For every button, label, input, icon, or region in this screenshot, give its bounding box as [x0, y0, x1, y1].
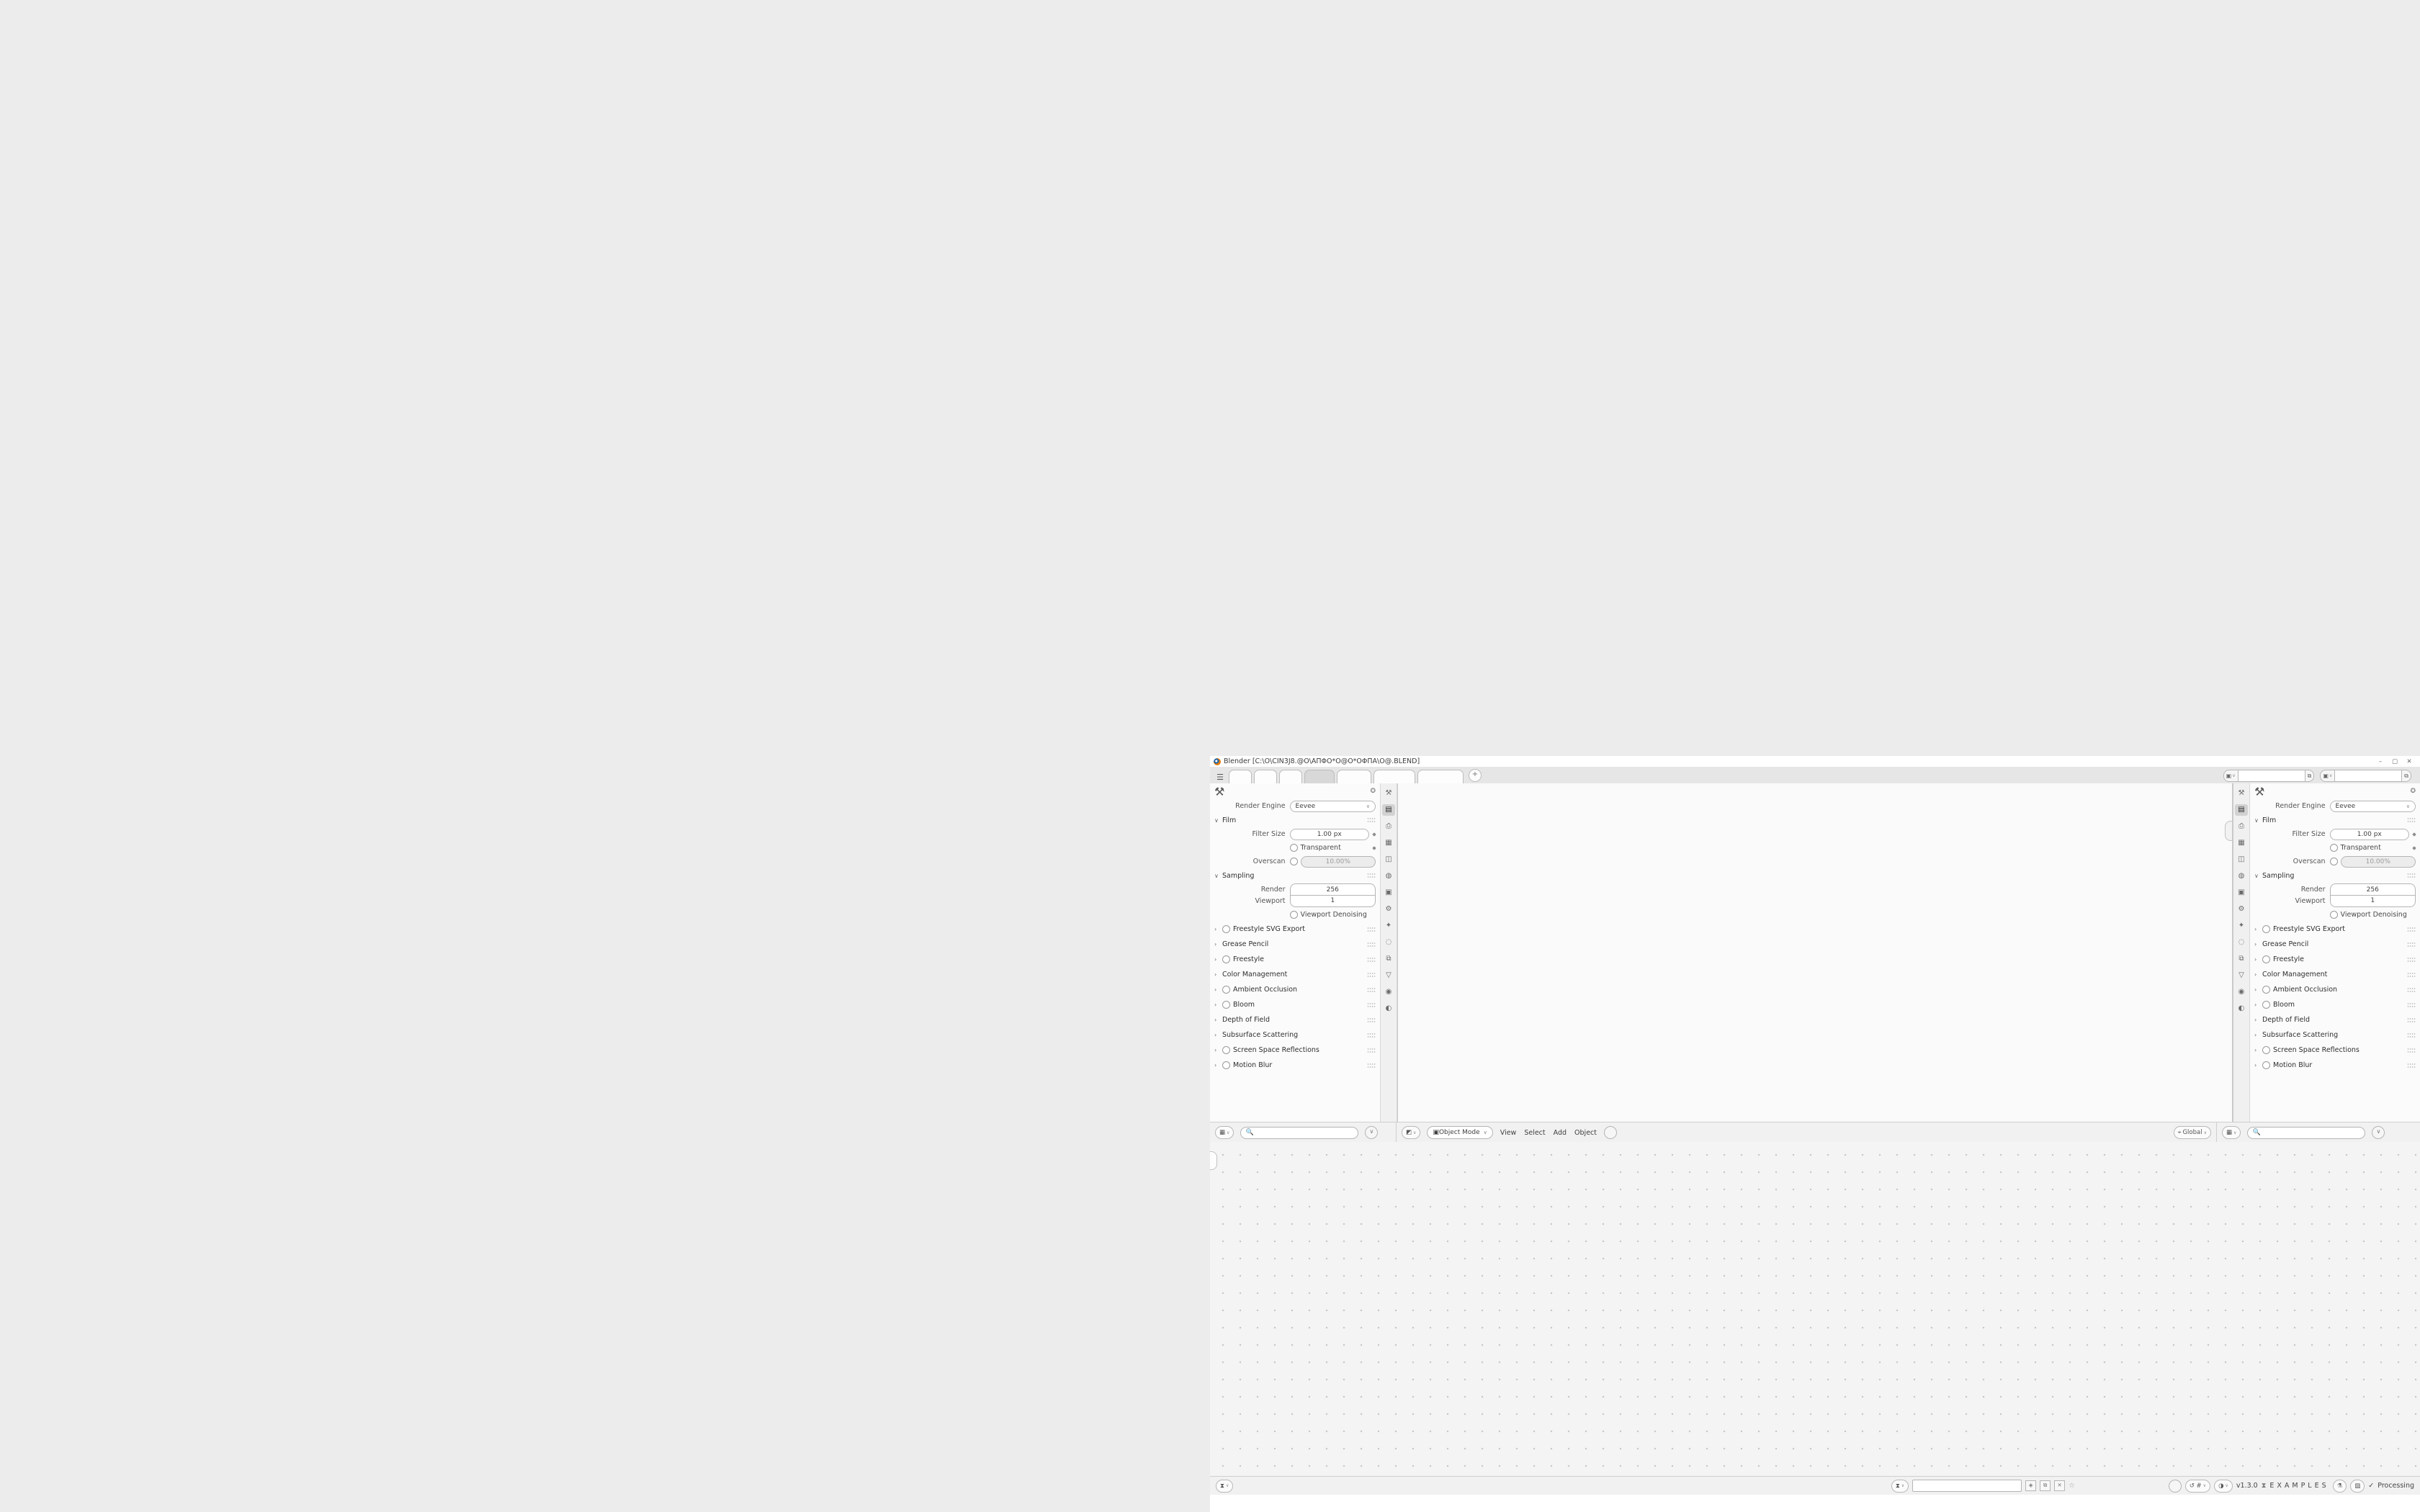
section-label: Grease Pencil	[1222, 940, 1268, 948]
drag-grip-icon	[2407, 1032, 2416, 1038]
section-subsurface-scattering[interactable]: ›Subsurface Scattering	[1210, 1027, 1380, 1043]
overscan-field[interactable]: 10.00%	[2341, 856, 2416, 868]
orientation-label: Global	[2182, 1129, 2202, 1136]
transparent-row: Transparent	[2250, 841, 2420, 855]
viewport-menu-add[interactable]: Add	[1553, 1129, 1567, 1137]
object-icon[interactable]: ▣	[1382, 887, 1395, 899]
drag-grip-icon	[2407, 942, 2416, 948]
search-input[interactable]: 🔍	[2247, 1127, 2365, 1139]
chevron-collapsed-icon: ›	[1214, 956, 1222, 963]
blank-toggle[interactable]	[1604, 1126, 1617, 1139]
section-grease-pencil[interactable]: ›Grease Pencil	[2250, 937, 2420, 952]
scene-selector: ▣∨⧉	[2223, 770, 2315, 781]
modifier-icon[interactable]: ⚙	[2235, 904, 2248, 915]
transparent-checkbox[interactable]	[1290, 844, 1298, 852]
tool-icon[interactable]: ⚒	[1382, 788, 1395, 799]
drag-grip-icon	[1367, 1017, 1376, 1023]
data-icon[interactable]: ▽	[2235, 970, 2248, 981]
editor-type-button[interactable]: ◩ ∨	[1402, 1126, 1420, 1139]
chevron-collapsed-icon: ›	[2254, 1047, 2262, 1053]
chevron-collapsed-icon: ›	[1214, 1017, 1222, 1023]
section-label: Screen Space Reflections	[1233, 1046, 1319, 1054]
section-bloom[interactable]: ›Bloom	[1210, 997, 1380, 1012]
drag-grip-icon	[1367, 927, 1376, 932]
scene-selector-field[interactable]	[2238, 770, 2305, 782]
viewport-samples-field[interactable]: 1	[1290, 896, 1376, 907]
drag-grip-icon	[2407, 1063, 2416, 1068]
quadrant-bottom-left-mirrored	[0, 756, 1210, 1512]
search-input[interactable]: 🔍	[1240, 1127, 1358, 1139]
section-screen-space-reflections[interactable]: ›Screen Space Reflections	[1210, 1043, 1380, 1058]
chevron-collapsed-icon: ›	[1214, 1062, 1222, 1068]
viewport-menu-select[interactable]: Select	[1523, 1129, 1546, 1137]
close-button[interactable]: ✕	[2404, 758, 2414, 765]
drag-grip-icon	[2407, 972, 2416, 978]
render-engine-row: Render EngineEevee∨	[2250, 799, 2420, 813]
close-icon[interactable]: ✕	[2054, 1480, 2065, 1491]
section-freestyle[interactable]: ›Freestyle	[2250, 952, 2420, 967]
chevron-collapsed-icon: ›	[2254, 986, 2262, 993]
chevron-collapsed-icon: ›	[1214, 1002, 1222, 1008]
transparent-checkbox[interactable]	[2330, 844, 2338, 852]
transparent-label: Transparent	[1301, 844, 1341, 852]
chevron-collapsed-icon: ›	[2254, 926, 2262, 932]
viewport-menu-view[interactable]: View	[1500, 1129, 1518, 1137]
section-label: Bloom	[2273, 1001, 2295, 1009]
overscan-label: Overscan	[1214, 858, 1290, 865]
drag-grip-icon	[1367, 972, 1376, 978]
section-sampling[interactable]: ∨Sampling	[1210, 868, 1380, 883]
material-icon[interactable]: ◉	[1382, 986, 1395, 998]
chevron-down-icon: ∨	[1413, 1130, 1416, 1135]
section-label: Color Management	[2262, 971, 2327, 978]
blender-logo-icon	[1214, 758, 1221, 765]
panel-breadcrumb: ⚒✪	[1210, 783, 1380, 799]
sidebar-toggle-handle[interactable]	[2225, 821, 2232, 841]
section-label: Ambient Occlusion	[1233, 986, 1297, 994]
section-label: Motion Blur	[1233, 1061, 1272, 1069]
header-footer-row: ▦ ∨ 🔍 ∨ ◩ ∨▣ Object Mode∨ViewSelectAddOb…	[1210, 1122, 2420, 1143]
section-bloom[interactable]: ›Bloom	[2250, 997, 2420, 1012]
node-editor-footer: ⧗ ∨ ⧗ ∨ ◈ ⧉ ✕ ☆ ↺ # ∨ ◑ ∨ v1.3.0 ⧗ EXAMP…	[1210, 1476, 2420, 1495]
filter-size-row: Filter Size1.00 px	[1210, 827, 1380, 841]
workspace-tab[interactable]	[1254, 770, 1277, 783]
section-label: Motion Blur	[2273, 1061, 2312, 1069]
render-samples-field[interactable]: 256	[2330, 883, 2416, 896]
section-checkbox[interactable]	[2262, 1001, 2270, 1009]
keyframe-dot-icon[interactable]	[1372, 832, 1376, 837]
section-label: Film	[2262, 816, 2276, 824]
keyframe-dot-icon[interactable]	[1372, 846, 1376, 850]
overscan-row: Overscan10.00%	[2250, 855, 2420, 868]
viewport-3d[interactable]	[1397, 783, 2233, 1122]
tree-name-field[interactable]	[1912, 1480, 2022, 1492]
viewport-denoising-checkbox[interactable]	[2330, 911, 2338, 919]
experimental-icon[interactable]: ⚗	[2333, 1480, 2347, 1493]
chevron-down-icon: ∨	[1363, 804, 1370, 809]
chevron-open-icon: ∨	[2254, 817, 2262, 824]
tool-icon[interactable]: ⚒	[2235, 788, 2248, 799]
main-area: ⚒✪Render EngineEevee∨∨FilmFilter Size1.0…	[1210, 783, 2420, 1122]
window-controls: – ▢ ✕	[2375, 758, 2420, 765]
filter-size-label: Filter Size	[2254, 830, 2330, 838]
view-layer-icon[interactable]: ▦	[1382, 837, 1395, 849]
workspace-tab[interactable]	[1229, 770, 1252, 783]
render-samples-label: Render	[1214, 886, 1290, 894]
render-icon[interactable]: ▤	[1382, 804, 1395, 816]
modifier-icon[interactable]: ⚙	[1382, 904, 1395, 915]
render-icon[interactable]: ▤	[2235, 804, 2248, 816]
constraints-icon[interactable]: ⧉	[1382, 953, 1395, 965]
panel-footer-right: ▦ ∨ 🔍 ∨	[2217, 1122, 2420, 1143]
blank-button[interactable]	[2169, 1480, 2182, 1493]
section-checkbox[interactable]	[1222, 986, 1230, 994]
section-label: Film	[1222, 816, 1236, 824]
workspace-tabs	[1229, 770, 1466, 783]
viewport-denoising-row: Viewport Denoising	[1210, 908, 1380, 922]
render-engine-select[interactable]: Eevee∨	[1290, 801, 1376, 812]
section-checkbox[interactable]	[1222, 1001, 1230, 1009]
section-freestyle-svg-export[interactable]: ›Freestyle SVG Export	[1210, 922, 1380, 937]
panel-footer-left: ▦ ∨ 🔍 ∨	[1210, 1122, 1396, 1143]
workspace-tab[interactable]	[1279, 770, 1302, 783]
examples-label[interactable]: EXAMPLES	[2269, 1482, 2329, 1490]
section-checkbox[interactable]	[1222, 1061, 1230, 1069]
section-label: Screen Space Reflections	[2273, 1046, 2359, 1054]
title-bar: Blender [C:\O\CIN3J8.@O\AΠΦO*O@O*OΦΠA\O@…	[1210, 756, 2420, 767]
section-depth-of-field[interactable]: ›Depth of Field	[1210, 1012, 1380, 1027]
section-sampling[interactable]: ∨Sampling	[2250, 868, 2420, 883]
section-motion-blur[interactable]: ›Motion Blur	[2250, 1058, 2420, 1073]
viewport-samples-row: Viewport1	[1210, 894, 1380, 908]
view-layer-icon[interactable]: ▦	[2235, 837, 2248, 849]
workspace-tab-row: ☰ + ▣∨⧉▣∨⧉	[1210, 767, 2420, 784]
processing-check-icon: ✓	[2368, 1482, 2374, 1490]
drag-grip-icon	[2407, 817, 2416, 823]
panel-toggle-handle[interactable]	[1210, 1151, 1217, 1170]
add-workspace-button[interactable]: +	[1469, 769, 1482, 782]
section-color-management[interactable]: ›Color Management	[2250, 967, 2420, 982]
maximize-button[interactable]: ▢	[2390, 758, 2400, 765]
section-ambient-occlusion[interactable]: ›Ambient Occlusion	[1210, 982, 1380, 997]
drag-grip-icon	[1367, 957, 1376, 963]
filter-size-field[interactable]: 1.00 px	[1290, 829, 1369, 840]
drag-grip-icon	[2407, 987, 2416, 993]
drag-grip-icon	[2407, 1048, 2416, 1053]
chevron-collapsed-icon: ›	[2254, 1017, 2262, 1023]
pin-icon[interactable]: ✪	[2410, 788, 2416, 795]
viewport-samples-row: Viewport1	[2250, 894, 2420, 908]
processing-label: Processing	[2378, 1482, 2414, 1490]
status-taskbar	[1210, 1495, 2420, 1512]
star-icon[interactable]: ☆	[2069, 1482, 2075, 1490]
drag-grip-icon	[2407, 1017, 2416, 1023]
chevron-collapsed-icon: ›	[1214, 971, 1222, 978]
view-layer-icon[interactable]: ▣∨	[2320, 770, 2335, 782]
scene-icon[interactable]: ◫	[1382, 854, 1395, 865]
properties-icon: ⚒	[1214, 785, 1224, 798]
section-checkbox[interactable]	[1222, 925, 1230, 933]
keyframe-dot-icon[interactable]	[2412, 846, 2416, 850]
viewport-denoising-label: Viewport Denoising	[1301, 911, 1367, 919]
section-label: Sampling	[2262, 872, 2294, 880]
keyframe-dot-icon[interactable]	[2412, 832, 2416, 837]
chevron-collapsed-icon: ›	[2254, 1062, 2262, 1068]
kaleidoscope-stage: Blender [C:\O\CIN3J8.@O\AΠΦO*O@O*OΦΠA\O@…	[0, 0, 2420, 1512]
version-label: v1.3.0	[2236, 1482, 2258, 1490]
drag-grip-icon	[1367, 1032, 1376, 1038]
particles-icon[interactable]: ✦	[2235, 920, 2248, 932]
physics-icon[interactable]: ◌	[1382, 937, 1395, 948]
copy-icon[interactable]: ⧉	[2402, 770, 2411, 782]
chevron-collapsed-icon: ›	[2254, 1032, 2262, 1038]
section-checkbox[interactable]	[2262, 955, 2270, 963]
section-checkbox[interactable]	[2262, 925, 2270, 933]
section-depth-of-field[interactable]: ›Depth of Field	[2250, 1012, 2420, 1027]
render-engine-label: Render Engine	[1214, 802, 1290, 810]
drag-grip-icon	[1367, 987, 1376, 993]
wireframe-sphere	[1398, 783, 2219, 1122]
world-icon[interactable]: ◍	[2235, 870, 2248, 882]
chevron-collapsed-icon: ›	[1214, 926, 1222, 932]
viewport-denoising-row: Viewport Denoising	[2250, 908, 2420, 922]
chevron-collapsed-icon: ›	[1214, 1047, 1222, 1053]
drag-grip-icon	[1367, 942, 1376, 948]
drag-grip-icon	[1367, 1002, 1376, 1008]
grid-icon[interactable]: ▨	[2350, 1480, 2365, 1493]
section-motion-blur[interactable]: ›Motion Blur	[1210, 1058, 1380, 1073]
section-checkbox[interactable]	[1222, 955, 1230, 963]
drag-grip-icon	[2407, 873, 2416, 878]
section-label: Subsurface Scattering	[1222, 1031, 1298, 1039]
hourglass-icon: ⧗	[2262, 1482, 2267, 1490]
view-layer-selector-field[interactable]	[2335, 770, 2402, 782]
update-button[interactable]: ↺ # ∨	[2185, 1480, 2210, 1493]
section-checkbox[interactable]	[2262, 986, 2270, 994]
overscan-row: Overscan10.00%	[1210, 855, 1380, 868]
quadrant-bottom-right: Blender [C:\O\CIN3J8.@O\AΠΦO*O@O*OΦΠA\O@…	[1210, 756, 2420, 1512]
viewport-samples-field[interactable]: 1	[2330, 896, 2416, 907]
workspace-tab[interactable]	[1417, 770, 1464, 783]
mode-icon: ▣	[1433, 1129, 1439, 1136]
transparent-label: Transparent	[2341, 844, 2381, 852]
drag-grip-icon	[2407, 927, 2416, 932]
physics-icon[interactable]: ◌	[2235, 937, 2248, 948]
overscan-field[interactable]: 10.00%	[1301, 856, 1376, 868]
section-film[interactable]: ∨Film	[1210, 813, 1380, 827]
section-label: Grease Pencil	[2262, 940, 2308, 948]
quadrant-top-right-mirrored	[1210, 0, 2420, 756]
properties-panel-left: ⚒✪Render EngineEevee∨∨FilmFilter Size1.0…	[1210, 783, 1380, 1122]
output-icon[interactable]: ⎙	[1382, 821, 1395, 832]
filter-size-field[interactable]: 1.00 px	[2330, 829, 2409, 840]
viewport-samples-label: Viewport	[1214, 897, 1290, 905]
properties-icon: ⚒	[2254, 785, 2264, 798]
render-samples-field[interactable]: 256	[1290, 883, 1376, 896]
shield-icon[interactable]: ◈	[2025, 1480, 2036, 1491]
render-samples-label: Render	[2254, 886, 2330, 894]
blender-window: Blender [C:\O\CIN3J8.@O\AΠΦO*O@O*OΦΠA\O@…	[1210, 756, 2420, 1512]
scene-icon[interactable]: ▣∨	[2223, 770, 2238, 782]
editor-type-button[interactable]: ▦ ∨	[1215, 1126, 1234, 1139]
viewport-denoising-checkbox[interactable]	[1290, 911, 1298, 919]
overscan-checkbox[interactable]	[1290, 858, 1298, 865]
draw-mode-button[interactable]: ◑ ∨	[2214, 1480, 2233, 1493]
system-monitor-graph	[2344, 1496, 2420, 1511]
node-wires	[1210, 1142, 2420, 1476]
chevron-collapsed-icon: ›	[1214, 986, 1222, 993]
drag-grip-icon	[2407, 1002, 2416, 1008]
chevron-collapsed-icon: ›	[1214, 941, 1222, 948]
workspace-tab[interactable]	[1373, 770, 1415, 783]
section-label: Depth of Field	[1222, 1016, 1270, 1024]
viewport-denoising-label: Viewport Denoising	[2341, 911, 2407, 919]
collapse-button[interactable]: ∨	[2372, 1126, 2385, 1139]
object-icon[interactable]: ▣	[2235, 887, 2248, 899]
quadrant-top-left-mirrored	[0, 0, 1210, 756]
chevron-down-icon: ∨	[1480, 1130, 1487, 1135]
data-icon[interactable]: ▽	[1382, 970, 1395, 981]
drag-grip-icon	[1367, 817, 1376, 823]
texture-icon[interactable]: ◐	[1382, 1003, 1395, 1014]
chevron-collapsed-icon: ›	[2254, 1002, 2262, 1008]
section-label: Freestyle	[2273, 955, 2304, 963]
overscan-label: Overscan	[2254, 858, 2330, 865]
filter-size-label: Filter Size	[1214, 830, 1290, 838]
chevron-collapsed-icon: ›	[2254, 956, 2262, 963]
section-film[interactable]: ∨Film	[2250, 813, 2420, 827]
copy-icon[interactable]: ⧉	[2040, 1480, 2051, 1491]
material-icon[interactable]: ◉	[2235, 986, 2248, 998]
chevron-open-icon: ∨	[1214, 873, 1222, 879]
overscan-checkbox[interactable]	[2330, 858, 2338, 865]
section-color-management[interactable]: ›Color Management	[1210, 967, 1380, 982]
drag-grip-icon	[1367, 1063, 1376, 1068]
scene-bar: ▣∨⧉▣∨⧉	[2223, 770, 2420, 783]
section-label: Sampling	[1222, 872, 1254, 880]
viewport-samples-label: Viewport	[2254, 897, 2330, 905]
render-engine-label: Render Engine	[2254, 802, 2330, 810]
section-label: Color Management	[1222, 971, 1287, 978]
transparent-row: Transparent	[1210, 841, 1380, 855]
copy-icon[interactable]: ⧉	[2305, 770, 2315, 782]
workspace-tab[interactable]	[1337, 770, 1371, 783]
minimize-button[interactable]: –	[2375, 758, 2385, 765]
node-editor[interactable]	[1210, 1142, 2420, 1476]
viewport-menu-object[interactable]: Object	[1574, 1129, 1597, 1137]
filter-size-row: Filter Size1.00 px	[2250, 827, 2420, 841]
editor-type-button[interactable]: ▦ ∨	[2222, 1126, 2241, 1139]
properties-tab-strip-right: ⚒▤⎙▦◫◍▣⚙✦◌⧉▽◉◐	[2233, 783, 2250, 1122]
pin-icon[interactable]: ✪	[1370, 788, 1376, 795]
chevron-down-icon: ∨	[2204, 1130, 2207, 1135]
window-title: Blender [C:\O\CIN3J8.@O\AΠΦO*O@O*OΦΠA\O@…	[1224, 757, 1420, 765]
render-engine-select[interactable]: Eevee∨	[2330, 801, 2416, 812]
chevron-open-icon: ∨	[2254, 873, 2262, 879]
view-layer-selector: ▣∨⧉	[2320, 770, 2411, 781]
editor-type-button[interactable]: ⧗ ∨	[1216, 1480, 1233, 1493]
section-checkbox[interactable]	[2262, 1046, 2270, 1054]
section-label: Depth of Field	[2262, 1016, 2310, 1024]
section-label: Bloom	[1233, 1001, 1255, 1009]
texture-icon[interactable]: ◐	[2235, 1003, 2248, 1014]
chevron-collapsed-icon: ›	[1214, 1032, 1222, 1038]
orientation-select[interactable]: ⌖ Global ∨	[2174, 1126, 2211, 1139]
section-label: Freestyle SVG Export	[2273, 925, 2345, 933]
panel-breadcrumb: ⚒✪	[2250, 783, 2420, 799]
mode-select[interactable]: ▣ Object Mode∨	[1427, 1126, 1492, 1139]
collapse-button[interactable]: ∨	[1365, 1126, 1378, 1139]
section-grease-pencil[interactable]: ›Grease Pencil	[1210, 937, 1380, 952]
render-engine-row: Render EngineEevee∨	[1210, 799, 1380, 813]
world-icon[interactable]: ◍	[1382, 870, 1395, 882]
chevron-open-icon: ∨	[1214, 817, 1222, 824]
viewport-header: ◩ ∨▣ Object Mode∨ViewSelectAddObject⌖ Gl…	[1396, 1122, 2217, 1143]
menu-icon[interactable]: ☰	[1213, 773, 1227, 782]
tree-selector-icon[interactable]: ⧗ ∨	[1891, 1480, 1909, 1493]
chevron-down-icon: ∨	[2403, 804, 2410, 809]
drag-grip-icon	[1367, 873, 1376, 878]
section-checkbox[interactable]	[1222, 1046, 1230, 1054]
particles-icon[interactable]: ✦	[1382, 920, 1395, 932]
workspace-tab[interactable]	[1304, 770, 1335, 783]
output-icon[interactable]: ⎙	[2235, 821, 2248, 832]
section-label: Ambient Occlusion	[2273, 986, 2337, 994]
section-label: Subsurface Scattering	[2262, 1031, 2338, 1039]
drag-grip-icon	[2407, 957, 2416, 963]
mode-label: Object Mode	[1439, 1129, 1480, 1136]
section-freestyle[interactable]: ›Freestyle	[1210, 952, 1380, 967]
drag-grip-icon	[1367, 1048, 1376, 1053]
properties-panel-right: ⚒✪Render EngineEevee∨∨FilmFilter Size1.0…	[2250, 783, 2420, 1122]
scene-icon[interactable]: ◫	[2235, 854, 2248, 865]
section-label: Freestyle SVG Export	[1233, 925, 1305, 933]
chevron-collapsed-icon: ›	[2254, 941, 2262, 948]
chevron-collapsed-icon: ›	[2254, 971, 2262, 978]
section-ambient-occlusion[interactable]: ›Ambient Occlusion	[2250, 982, 2420, 997]
constraints-icon[interactable]: ⧉	[2235, 953, 2248, 965]
section-screen-space-reflections[interactable]: ›Screen Space Reflections	[2250, 1043, 2420, 1058]
section-freestyle-svg-export[interactable]: ›Freestyle SVG Export	[2250, 922, 2420, 937]
section-label: Freestyle	[1233, 955, 1264, 963]
section-checkbox[interactable]	[2262, 1061, 2270, 1069]
properties-tab-strip-left: ⚒▤⎙▦◫◍▣⚙✦◌⧉▽◉◐	[1380, 783, 1397, 1122]
section-subsurface-scattering[interactable]: ›Subsurface Scattering	[2250, 1027, 2420, 1043]
